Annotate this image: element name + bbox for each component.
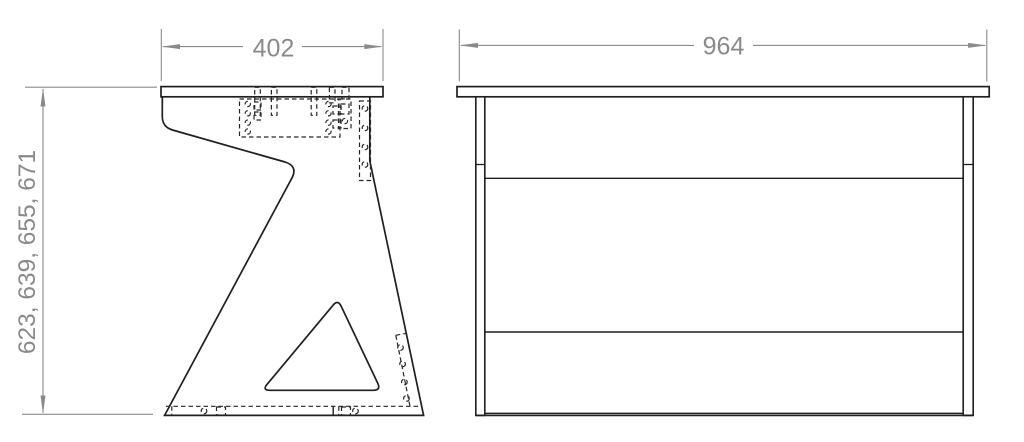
svg-text:623, 639, 655, 671: 623, 639, 655, 671: [14, 150, 41, 354]
svg-text:402: 402: [253, 35, 295, 63]
svg-text:964: 964: [703, 32, 745, 60]
